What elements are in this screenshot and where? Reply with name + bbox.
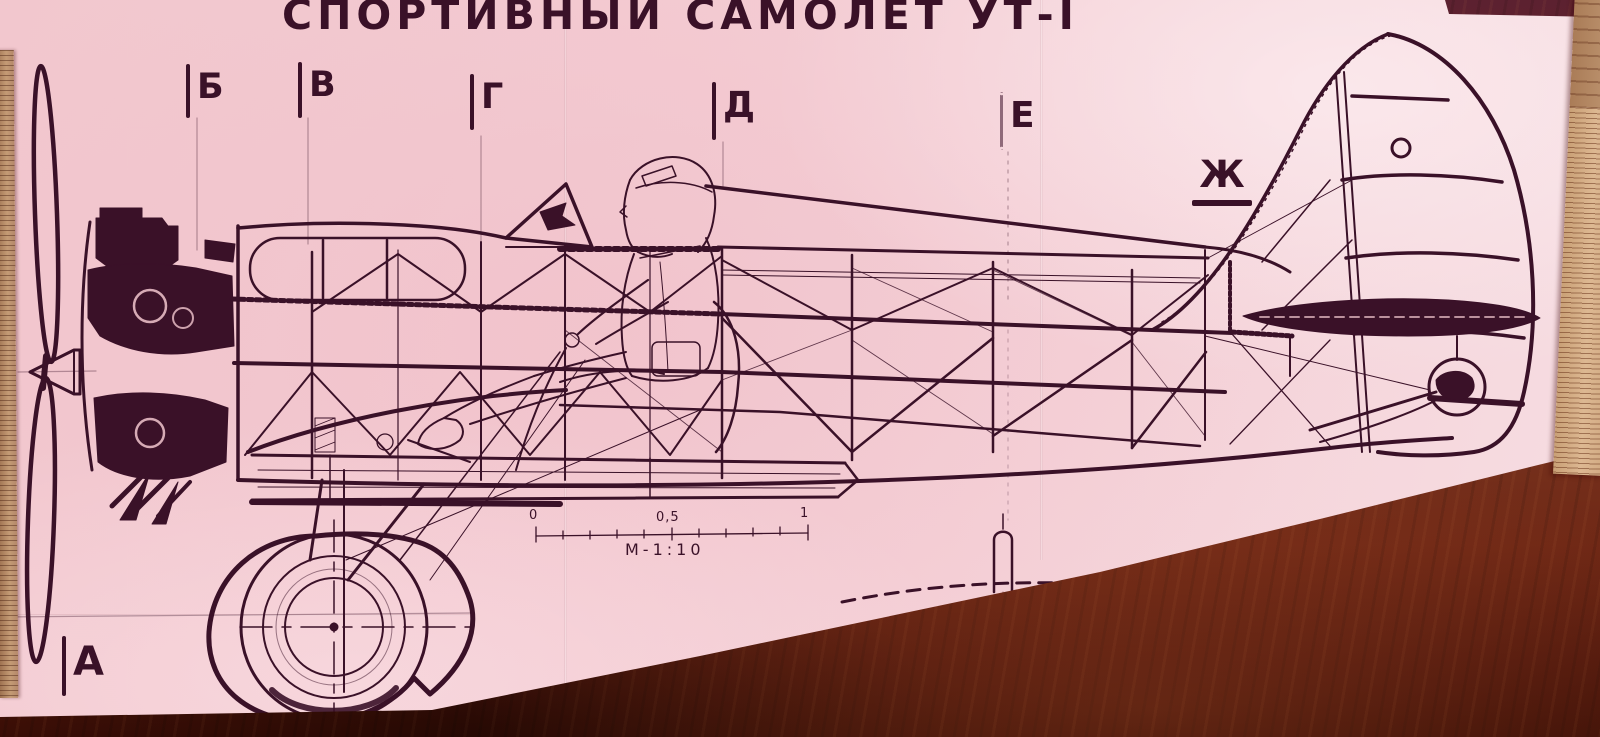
scale-half-label: 0,5 — [656, 510, 680, 525]
ruler-wood-section — [1570, 0, 1600, 109]
section-label: Б — [197, 70, 224, 105]
section-tick — [712, 82, 716, 140]
control-stick — [516, 348, 566, 470]
section-label: Д — [723, 88, 755, 124]
scale-one-label: 1 — [800, 506, 809, 521]
section-label: В — [309, 68, 336, 103]
scale-zero-label: 0 — [529, 508, 538, 523]
photo-of-blueprint: СПОРТИВНЫЙ САМОЛЁТ УТ-I Б В Г Д Е Ж А — [0, 0, 1600, 737]
wing-root — [248, 390, 1168, 602]
wheel-spat — [209, 534, 473, 722]
engine — [82, 208, 235, 479]
section-marker-zh: Ж — [1192, 156, 1252, 206]
windscreen — [506, 184, 592, 247]
section-underline — [1192, 200, 1252, 206]
section-marker-b: Б — [186, 64, 224, 118]
section-label: Г — [481, 80, 503, 115]
section-marker-v: В — [298, 62, 336, 118]
fuselage-truss — [234, 242, 1232, 480]
tail-wheel — [1205, 334, 1485, 446]
section-tick — [298, 62, 302, 118]
section-tick — [62, 636, 66, 696]
section-marker-e: Е — [1000, 92, 1035, 150]
scale-ratio-label: М-1:10 — [625, 540, 705, 559]
section-tick — [186, 64, 190, 118]
section-tick — [470, 74, 474, 130]
windscreen-emblem — [540, 203, 575, 230]
cowl-louvre-panel — [250, 238, 465, 300]
drawing-title: СПОРТИВНЫЙ САМОЛЁТ УТ-I — [282, 0, 1079, 39]
rudder-hinge-circle — [1392, 139, 1410, 157]
section-label: Ж — [1192, 156, 1252, 193]
section-tick — [1000, 92, 1003, 150]
section-marker-d: Д — [712, 82, 755, 140]
section-label: Е — [1010, 98, 1035, 134]
section-marker-g: Г — [470, 74, 503, 130]
section-label: А — [73, 642, 104, 682]
section-marker-a: А — [62, 636, 104, 696]
boot — [418, 418, 463, 449]
